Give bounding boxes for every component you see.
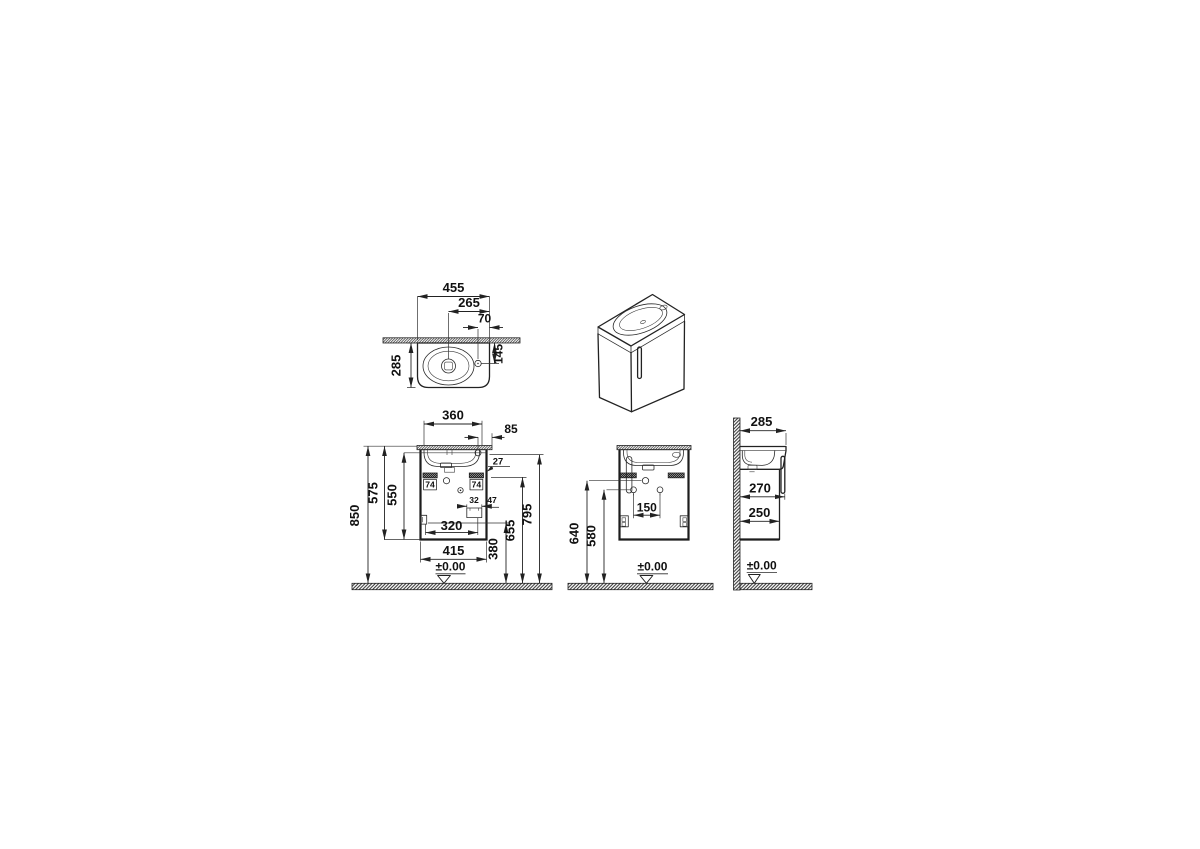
outlet-box <box>467 508 482 518</box>
siphon-stub <box>445 468 455 473</box>
side-view: 285 270 250 ±0.00 <box>734 414 813 590</box>
door-handle-3d <box>638 347 642 379</box>
drain-front <box>441 463 452 468</box>
front-view: 74 74 360 85 27 32 47 320 <box>347 407 552 589</box>
dim-rear-drain-height: 640 <box>567 523 582 545</box>
cabinet-left-face <box>598 334 632 412</box>
dim-front-body-height: 575 <box>366 482 381 504</box>
fixing-hole-right <box>657 487 663 493</box>
front-floor-datum: ±0.00 <box>436 559 466 573</box>
dim-front-mounting-width: 360 <box>442 407 464 422</box>
floor-side <box>740 583 812 589</box>
dim-side-cabinet-depth: 250 <box>749 505 771 520</box>
rear-view: 150 640 580 ±0.00 <box>567 446 714 590</box>
drain-cover <box>445 362 453 370</box>
dim-rear-holes-height: 580 <box>584 525 599 547</box>
basin-rim-section <box>417 446 492 450</box>
perspective-view <box>598 295 685 412</box>
dim-top-drain-offset: 265 <box>458 295 480 310</box>
dim-front-outlet-height: 380 <box>486 538 501 560</box>
dim-front-outlet-width: 32 <box>469 495 479 505</box>
basin-profile-side <box>740 447 786 470</box>
bowl-rear <box>624 450 684 466</box>
wall-section-band <box>383 338 520 343</box>
dim-top-basin-depth: 285 <box>389 355 404 377</box>
rear-floor-datum: ±0.00 <box>638 559 668 573</box>
bowl-profile-side <box>742 451 775 466</box>
rear-datum-triangle <box>640 576 653 584</box>
dim-top-overall-width: 455 <box>443 280 465 295</box>
dim-side-handle-depth: 270 <box>749 480 771 495</box>
floor-front <box>352 583 552 589</box>
back-panel-hole <box>443 478 449 484</box>
front-datum-triangle <box>438 576 451 584</box>
top-view: 455 265 70 145 285 <box>383 280 520 388</box>
dim-front-cabinet-width: 415 <box>443 543 465 558</box>
bracket-right-label: 74 <box>472 479 482 489</box>
basin-rim-section-rear <box>617 446 691 450</box>
dim-top-tap-offset: 70 <box>478 312 492 326</box>
floor-rear <box>568 583 713 589</box>
tap-hole-center <box>477 363 478 364</box>
tap-recess-rear <box>672 452 680 457</box>
drain-outlet-hole <box>642 478 648 484</box>
fixing-hole-left <box>631 487 637 493</box>
dim-front-outlet-offset: 320 <box>441 518 463 533</box>
dim-front-tap-edge-offset: 85 <box>504 422 518 436</box>
dim-front-door-height: 550 <box>385 484 400 506</box>
mounting-bracket-right <box>469 473 483 478</box>
technical-drawing-canvas: 455 265 70 145 285 74 <box>0 0 1200 849</box>
side-datum-triangle <box>748 575 760 584</box>
dim-front-bracket-clearance: 27 <box>493 455 503 466</box>
cabinet-top-face <box>598 295 685 347</box>
drain-hole <box>442 359 456 373</box>
dim-side-total-depth: 285 <box>751 414 773 429</box>
drain-3d <box>640 320 646 324</box>
bracket-left-label: 74 <box>425 479 435 489</box>
cabinet-door-face <box>632 321 685 412</box>
dimension-drawing: 455 265 70 145 285 74 <box>0 0 1200 849</box>
mounting-bracket-rear-right <box>668 473 684 478</box>
mounting-bracket-rear-left <box>620 473 636 478</box>
mounting-bracket-left <box>423 473 437 478</box>
dim-rear-hole-spacing: 150 <box>637 500 657 514</box>
dim-front-bracket-height: 655 <box>503 520 518 542</box>
door-handle-side <box>781 456 785 493</box>
side-floor-datum: ±0.00 <box>747 558 777 572</box>
dim-front-outlet-clearance: 47 <box>487 495 497 505</box>
dim-front-basin-underside-height: 795 <box>520 504 535 526</box>
dim-top-tap-depth: 145 <box>492 344 506 364</box>
dim-front-total-height: 850 <box>347 505 362 527</box>
wall-section-side <box>734 418 741 590</box>
